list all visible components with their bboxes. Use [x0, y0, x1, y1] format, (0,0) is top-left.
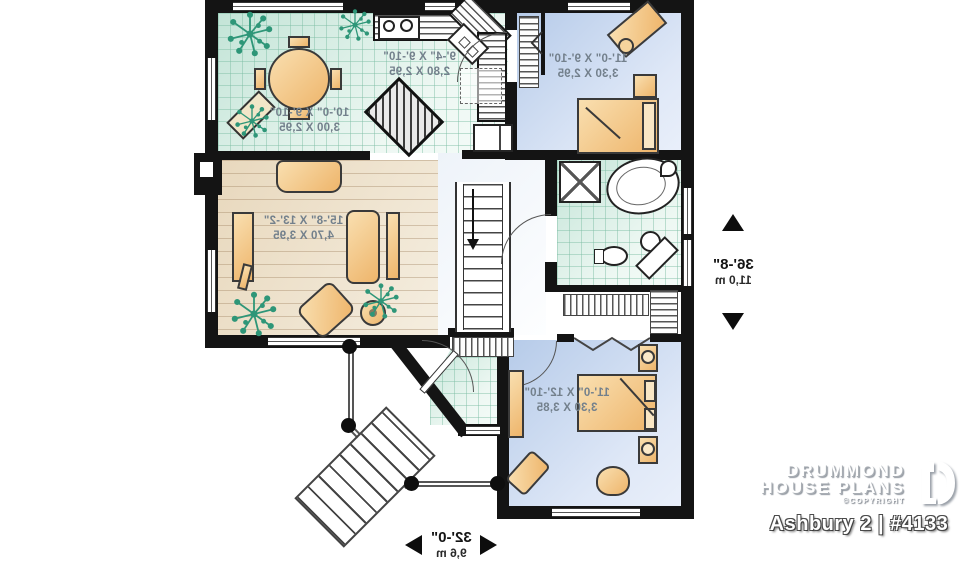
porch-column — [341, 418, 356, 433]
plan-title: Ashbury 2 | #4133 — [735, 513, 957, 536]
corner-shower — [559, 161, 601, 203]
nightstand-lamp — [641, 350, 655, 364]
room-dim-m: 3,30 X 2,95 — [538, 67, 638, 82]
sofa — [276, 160, 342, 193]
room-dim-m: 2,80 X 2,95 — [372, 65, 467, 80]
arrow-down-icon — [722, 313, 744, 330]
window-dining-left — [207, 58, 216, 120]
dining-chair — [254, 68, 266, 90]
dining-table — [268, 48, 330, 110]
porch-railing — [412, 481, 500, 487]
reading-chair — [596, 466, 630, 496]
wall-bath-left-a — [545, 160, 557, 216]
width-m: 9,6 m — [431, 546, 472, 561]
room-label-bedroom2: 11'-0" X 9'-10" 3,30 X 2,95 — [538, 52, 638, 82]
overall-depth-marker: 36'-8" 11,0 m — [702, 214, 764, 330]
window-bedroom2 — [568, 2, 630, 11]
overall-width-marker: 32'-0" 9,6 m — [365, 524, 537, 566]
depth-m: 11,0 m — [713, 273, 754, 288]
width-dimension-text: 32'-0" 9,6 m — [431, 529, 472, 561]
loveseat — [346, 210, 380, 284]
porch-railing — [348, 348, 354, 422]
porch-column — [342, 339, 357, 354]
fridge — [473, 124, 513, 152]
plant-icon — [230, 290, 278, 338]
width-ft: 32'-0" — [431, 529, 472, 546]
room-dim-ft: 10'-0" X 9'-10" — [252, 106, 367, 121]
floor-plan-canvas: 10'-0" X 9'-10" 3,00 X 2,95 9'-4" X 9'-1… — [0, 0, 960, 569]
nightstand-lamp — [641, 442, 655, 456]
brand-name-block: DRUMMOND HOUSE PLANS ©COPYRIGHT — [760, 462, 905, 505]
arrow-right-icon — [480, 535, 497, 555]
stairs-arrow-down — [467, 239, 479, 250]
room-dim-ft: 11'-0" X 12'-10" — [518, 386, 616, 401]
tub-faucet — [660, 160, 677, 177]
bed-pillow — [644, 380, 656, 402]
room-dim-ft: 9'-4" X 9'-10" — [372, 50, 467, 65]
room-label-master: 11'-0" X 12'-10" 3,30 X 3,85 — [518, 386, 616, 416]
plant-icon — [226, 10, 274, 58]
brand-copyright: ©COPYRIGHT — [760, 498, 905, 505]
wall-dining-living — [218, 151, 370, 160]
room-dim-m: 4,70 X 3,95 — [256, 229, 351, 244]
room-dim-ft: 15'-8" X 13'-2" — [256, 214, 351, 229]
hall-closet-side-shelf — [650, 290, 678, 334]
toilet-tank — [594, 249, 604, 264]
dining-chair — [288, 36, 310, 48]
window-kitchen — [425, 2, 455, 11]
fridge-divider — [499, 126, 501, 150]
plant-icon — [338, 8, 372, 42]
stove-burner — [400, 19, 413, 32]
branding-block: DRUMMOND HOUSE PLANS ©COPYRIGHT Ashbury … — [735, 458, 957, 550]
plant-icon — [362, 282, 400, 320]
wall-closet-bottom-c — [650, 334, 681, 342]
window-foyer — [466, 426, 500, 435]
wall-kitchen-bed2-a — [505, 0, 517, 30]
drummond-logo-icon — [915, 458, 957, 508]
arrow-up-icon — [722, 214, 744, 231]
wall-closet-bottom-b — [557, 334, 574, 342]
wall-bath-left-b — [545, 262, 557, 292]
brand-name-line2: HOUSE PLANS — [760, 479, 905, 496]
room-label-living: 15'-8" X 13'-2" 4,70 X 3,95 — [256, 214, 351, 244]
stove-burner — [383, 20, 395, 32]
toilet — [600, 246, 628, 266]
room-label-dining: 10'-0" X 9'-10" 3,00 X 2,95 — [252, 106, 367, 136]
room-dim-m: 3,00 X 2,95 — [252, 121, 367, 136]
arrow-left-icon — [405, 535, 422, 555]
hall-closet-shelf — [563, 294, 649, 316]
bed-pillow — [642, 102, 656, 150]
window-bath-right-b — [683, 240, 692, 286]
stair-treads — [463, 184, 503, 330]
window-living-left — [207, 250, 216, 312]
brand-logo-row: DRUMMOND HOUSE PLANS ©COPYRIGHT — [735, 458, 957, 508]
room-dim-ft: 11'-0" X 9'-10" — [538, 52, 638, 67]
chimney-notch — [200, 162, 213, 177]
brand-name-line1: DRUMMOND — [760, 462, 905, 479]
porch-column — [404, 476, 419, 491]
porch-column — [490, 476, 505, 491]
stairs-vent-hatch — [452, 337, 514, 357]
stairs-direction-line — [472, 189, 474, 241]
window-master-bottom — [552, 508, 640, 517]
dining-chair — [330, 68, 342, 90]
console-table — [386, 212, 400, 280]
room-label-kitchen: 9'-4" X 9'-10" 2,80 X 2,95 — [372, 50, 467, 80]
window-bath-right-a — [683, 188, 692, 234]
room-dim-m: 3,30 X 3,85 — [518, 401, 616, 416]
depth-dimension-text: 36'-8" 11,0 m — [713, 256, 754, 288]
depth-ft: 36'-8" — [713, 256, 754, 273]
